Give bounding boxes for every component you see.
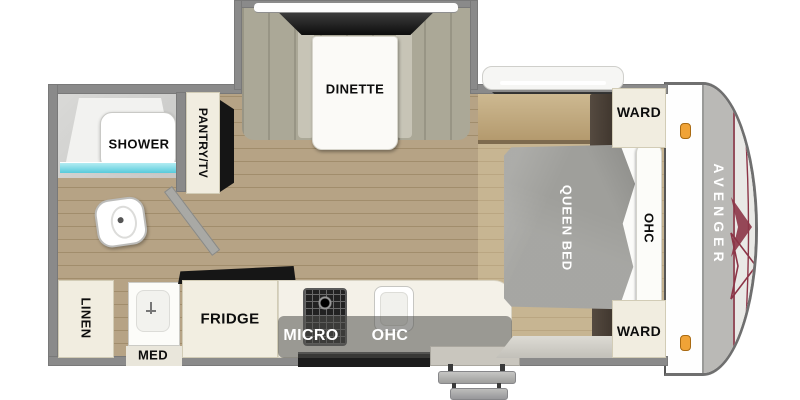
front-cap: AVENGER [664,82,758,376]
brand-label: AVENGER [711,163,727,266]
dinette-label: DINETTE [326,82,384,97]
med-label: MED [138,348,168,363]
shower-water-strip [60,162,176,173]
bed-ohc-label: OHC [642,213,657,243]
micro-label: MICRO [283,327,338,345]
bedroom-head-counter [478,94,592,144]
bath-partition-wall [176,92,186,192]
slideout-wall-left [234,0,242,90]
cap-graphics-decal [728,85,758,375]
med-sink-faucet-handle [146,310,156,312]
entry-step-1 [438,371,516,384]
shower-label: SHOWER [109,137,170,152]
ward-top-label: WARD [617,104,661,120]
bed-foot-shelf [496,336,618,358]
fridge-label: FRIDGE [200,311,259,328]
bedroom-window-sill [482,66,624,90]
tv [220,100,234,192]
kitchen-ohc-label: OHC [372,327,409,345]
entry-step-2 [450,388,508,400]
queen-bed-label: QUEEN BED [560,185,575,271]
slideout-roof-strip [254,3,458,13]
floorplan-canvas: AVENGER DINETTE SHOWER LINEN MED PANTRY/… [0,0,800,400]
wall-left [48,84,58,366]
dinette-window [276,13,436,35]
ward-bottom-label: WARD [617,323,661,339]
clearance-light-bottom [680,335,691,351]
med-sink-faucet [150,302,152,314]
toilet [93,195,151,252]
bedroom-window-sill-highlight [500,81,606,85]
slideout-wall-right [470,0,478,90]
clearance-light-top [680,123,691,139]
pantry-tv-label: PANTRY/TV [196,108,210,178]
linen-label: LINEN [79,298,94,339]
